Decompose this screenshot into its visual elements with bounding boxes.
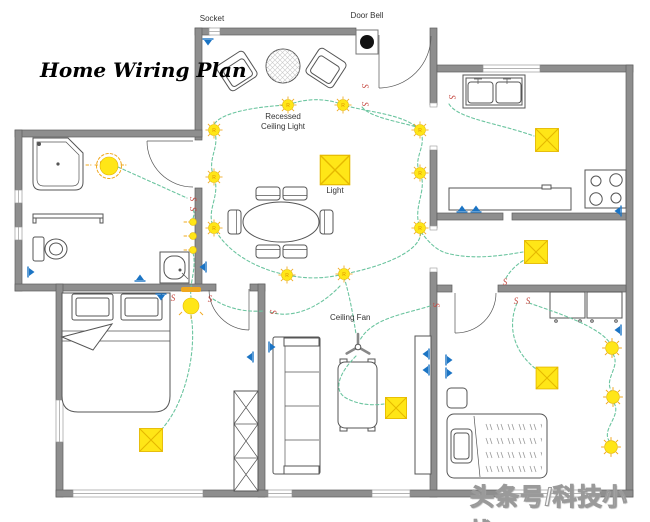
switch-icon: S — [360, 102, 370, 107]
ceiling-light-icon — [320, 155, 349, 184]
tv-bench — [338, 359, 377, 431]
ceiling-light-icon — [536, 129, 559, 152]
socket-icon — [135, 275, 146, 282]
switch-icon: S — [188, 197, 198, 202]
socket-icon — [28, 267, 35, 278]
shower — [33, 138, 83, 190]
recessed-letter: R — [418, 128, 422, 134]
home-wiring-plan: R R R R R R R R R R — [0, 0, 650, 522]
ceiling-fan-icon — [347, 334, 370, 354]
door-bell-icon — [356, 30, 378, 54]
kitchen-counter — [449, 185, 571, 210]
door-bell-label: Door Bell — [343, 11, 391, 21]
ceiling-light-icon — [525, 241, 548, 264]
recessed-letter: R — [212, 175, 216, 181]
watermark: 头条号/科技小栈 — [470, 477, 650, 522]
hall-round-table — [266, 49, 300, 83]
ceiling-light-icon — [536, 367, 558, 389]
wall-light-icon — [601, 437, 621, 457]
socket-icon — [247, 352, 254, 363]
bedroom1-bed — [62, 293, 170, 412]
recessed-letter: R — [341, 103, 345, 109]
recessed-letter: R — [286, 103, 290, 109]
bathroom-sink — [160, 252, 189, 283]
recessed-letter: R — [212, 128, 216, 134]
bedroom1-door — [209, 289, 249, 330]
recessed-letter: R — [418, 171, 422, 177]
wall-lamp-icon — [190, 219, 197, 226]
recessed-letter: R — [212, 226, 216, 232]
stove — [585, 170, 626, 208]
recessed-ceiling-light-label: Recessed Ceiling Light — [243, 112, 323, 133]
switch-icon: S — [447, 95, 457, 100]
sofa — [273, 337, 320, 474]
wall-lamp-icon — [190, 233, 197, 240]
recessed-label-line1: Recessed — [243, 112, 323, 122]
ceiling-light-icon — [385, 397, 406, 418]
dresser-right — [587, 292, 622, 322]
light-label: Light — [318, 186, 352, 196]
dresser-left — [550, 292, 585, 322]
bathroom-ceiling-light-icon — [97, 154, 122, 179]
bedroom2-door — [455, 293, 496, 333]
ceiling-fan-label: Ceiling Fan — [330, 313, 370, 323]
bedroom2-bed — [447, 414, 547, 478]
switch-icon: S — [171, 293, 176, 303]
recessed-letter: R — [285, 273, 289, 279]
socket-icon — [446, 368, 453, 379]
wall-light-icon — [602, 338, 622, 358]
switch-icon: S — [268, 310, 278, 315]
socket-label: Socket — [195, 14, 229, 24]
socket-icon — [203, 39, 214, 46]
wall-light-icon — [603, 387, 623, 407]
switch-icon: S — [526, 296, 531, 306]
socket-icon — [615, 325, 622, 336]
recessed-letter: R — [418, 226, 422, 232]
switch-icon: S — [431, 303, 441, 308]
switch-icon: S — [503, 277, 508, 287]
switch-icon: S — [514, 296, 519, 306]
towel-rail — [33, 214, 103, 223]
switch-icon: S — [188, 207, 198, 212]
toilet — [33, 237, 67, 261]
switch-icon: S — [208, 294, 213, 304]
plan-title: Home Wiring Plan — [40, 58, 247, 82]
recessed-letter: R — [342, 272, 346, 278]
bathroom-door — [147, 141, 193, 187]
socket-icon — [446, 355, 453, 366]
kitchen-sink — [463, 75, 525, 108]
hall-armchair-right — [304, 47, 347, 90]
wardrobe — [234, 391, 258, 491]
ceiling-light-icon — [140, 429, 163, 452]
recessed-label-line2: Ceiling Light — [243, 122, 323, 132]
switch-icon: S — [360, 84, 370, 89]
dining-table-set — [228, 187, 333, 258]
pendant-light-icon — [179, 287, 203, 319]
nightstand — [447, 388, 467, 408]
entry-door — [379, 35, 431, 88]
wall-lamp-icon — [190, 247, 197, 254]
